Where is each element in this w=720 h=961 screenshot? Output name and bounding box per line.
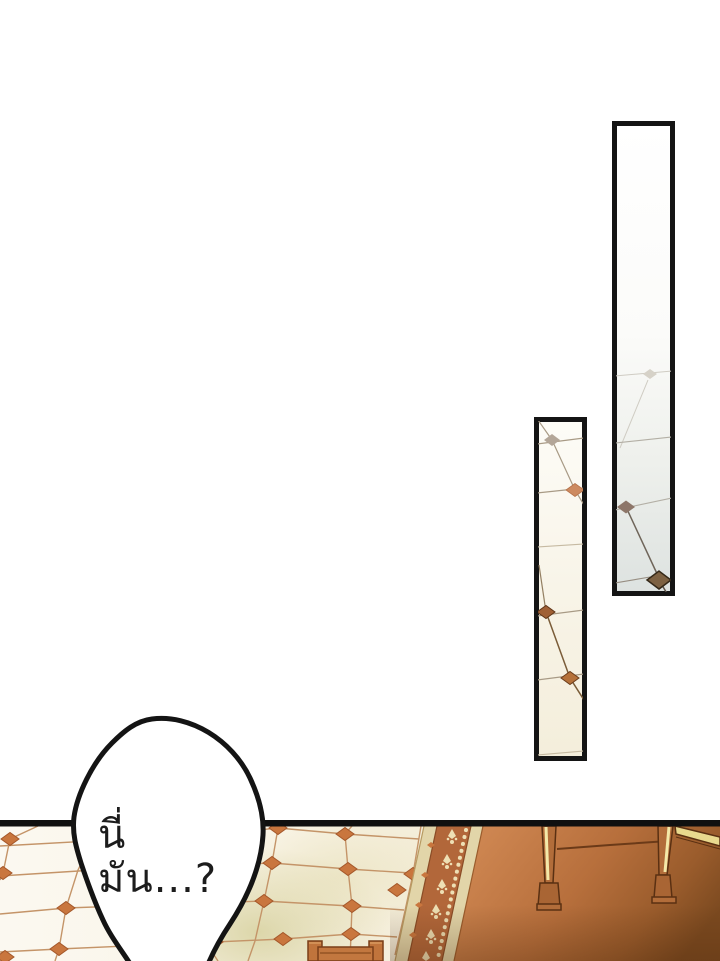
panel-frame: [615, 124, 673, 594]
panel-frame: [537, 420, 585, 759]
carpet-bottom-shade: [390, 905, 720, 961]
gold-trim-left-leg: [546, 827, 548, 880]
inset-panel-right: [612, 121, 675, 596]
speech-bubble-text: นี่มัน...?: [98, 820, 238, 894]
inset-panel-left: [534, 417, 587, 761]
comic-page: นี่มัน...?: [0, 0, 720, 961]
